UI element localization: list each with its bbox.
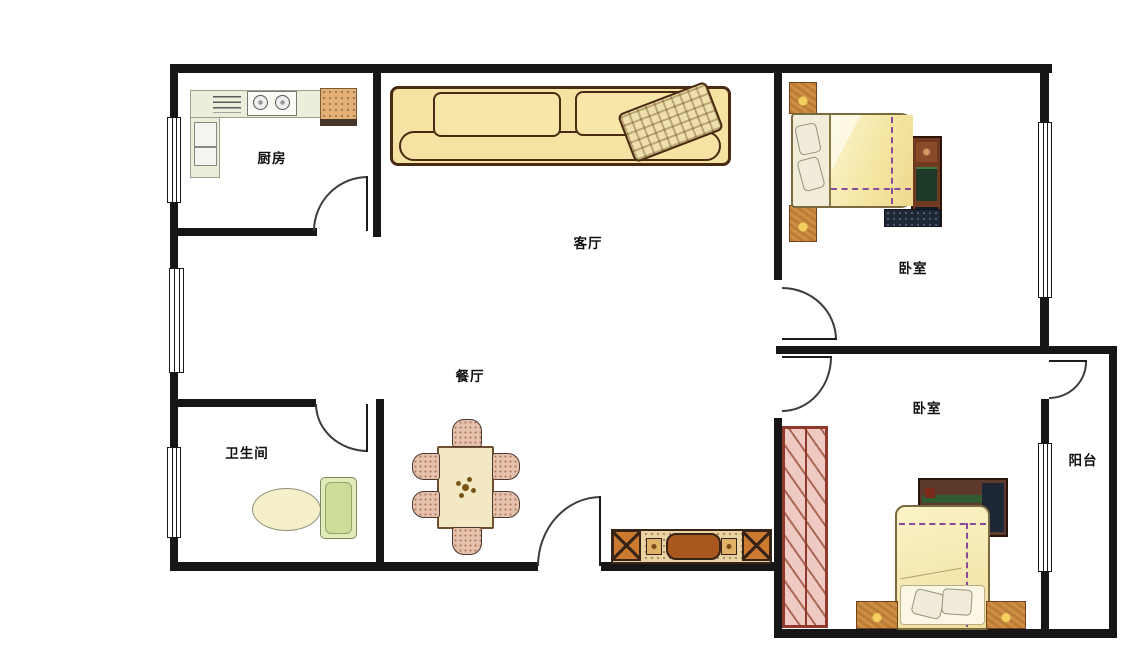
entry-door-arc <box>537 496 601 566</box>
bedroom-bottom-door-arc <box>782 357 832 412</box>
kitchen-door-arc <box>313 176 368 231</box>
quilt-fold-line <box>900 568 961 580</box>
bedroom-top-window <box>1038 122 1052 298</box>
chair-icon <box>412 491 440 518</box>
tv-icon <box>666 533 721 560</box>
room-label-bathroom: 卫生间 <box>225 442 269 462</box>
quilt-seam <box>831 188 911 190</box>
centerpiece-flower-icon <box>462 484 469 491</box>
wall-bathroom-top <box>170 399 316 407</box>
burner-icon <box>253 95 268 110</box>
bedroom-top-door-leaf <box>782 338 837 340</box>
chair-icon <box>492 453 520 480</box>
balcony-door-leaf <box>1049 360 1087 362</box>
wall-kitchen-bottom <box>170 228 317 236</box>
sink-front-band <box>320 119 357 126</box>
bathroom-door-arc <box>315 404 368 452</box>
cabinet-x-door-icon <box>612 530 641 561</box>
toilet-tank <box>320 477 357 539</box>
stove-icon <box>247 91 297 116</box>
wall-bottom-left <box>170 562 538 571</box>
nightstand-icon <box>789 82 817 114</box>
wardrobe-icon <box>782 426 828 628</box>
dresser-red-knob <box>925 488 935 498</box>
room-label-balcony: 阳台 <box>1069 449 1098 469</box>
wall-balcony-right <box>1109 346 1117 638</box>
tv-cabinet-icon <box>611 529 772 564</box>
kitchen-window <box>167 117 181 203</box>
pillow-icon <box>794 122 822 156</box>
toilet-icon <box>252 488 321 531</box>
room-label-living-room: 客厅 <box>574 232 603 252</box>
pillow-icon <box>941 588 973 616</box>
room-label-dining-room: 餐厅 <box>456 365 485 385</box>
pillow-icon <box>796 156 826 193</box>
cabinet-icon <box>884 209 941 227</box>
room-label-bedroom-bottom: 卧室 <box>913 397 942 417</box>
dresser-top-panel <box>916 142 937 162</box>
room-label-kitchen: 厨房 <box>258 147 287 167</box>
entry-door-leaf <box>599 496 601 566</box>
floor-plan: 厨房 客厅 卧室 餐厅 卫生间 卧室 阳台 <box>0 0 1136 661</box>
chair-icon <box>452 527 482 555</box>
wall-core-upper <box>774 64 782 280</box>
bathroom-door-leaf <box>366 404 368 452</box>
balcony-window <box>1038 443 1052 572</box>
wall-bathroom-right <box>376 399 384 571</box>
cabinet-x-door-icon <box>742 530 771 561</box>
quilt-seam <box>899 523 986 525</box>
sofa-icon <box>390 86 731 166</box>
balcony-door-arc <box>1049 362 1087 399</box>
wall-kitchen-right <box>373 64 381 237</box>
nightstand-icon <box>986 601 1026 629</box>
sink-icon <box>320 88 357 121</box>
bedroom-bottom-door-leaf <box>782 356 832 358</box>
kitchen-door-leaf <box>366 176 368 231</box>
fridge-divider <box>195 146 216 148</box>
bed-icon <box>791 113 913 208</box>
bed-icon <box>895 505 990 630</box>
wardrobe-divider <box>805 429 807 625</box>
chair-icon <box>452 419 482 447</box>
wall-bedroom-divider <box>776 346 1115 354</box>
dresser-green-panel <box>916 167 937 201</box>
cabinet-ornament <box>646 538 662 555</box>
nightstand-icon <box>789 205 817 242</box>
range-vent-icon <box>213 96 241 113</box>
cabinet-ornament <box>721 538 737 555</box>
burner-icon <box>275 95 290 110</box>
quilt-fold <box>831 115 861 171</box>
nightstand-icon <box>856 601 898 629</box>
wall-balcony-inner-b <box>1041 570 1049 638</box>
room-label-bedroom-top: 卧室 <box>899 257 928 277</box>
quilt-seam <box>891 117 893 204</box>
wall-top <box>170 64 1052 73</box>
bathroom-window <box>167 447 181 538</box>
fridge-icon <box>194 122 217 166</box>
bedroom-top-door-arc <box>782 287 837 340</box>
wall-balcony-inner-a <box>1041 399 1049 445</box>
sofa-cushion <box>433 92 561 137</box>
wall-bottom-right <box>774 629 1117 638</box>
dining-table-icon <box>437 446 494 529</box>
chair-icon <box>492 491 520 518</box>
wall-core-lower <box>774 418 782 638</box>
chair-icon <box>412 453 440 480</box>
hall-window <box>169 268 184 373</box>
toilet-tank-inner <box>325 482 352 534</box>
